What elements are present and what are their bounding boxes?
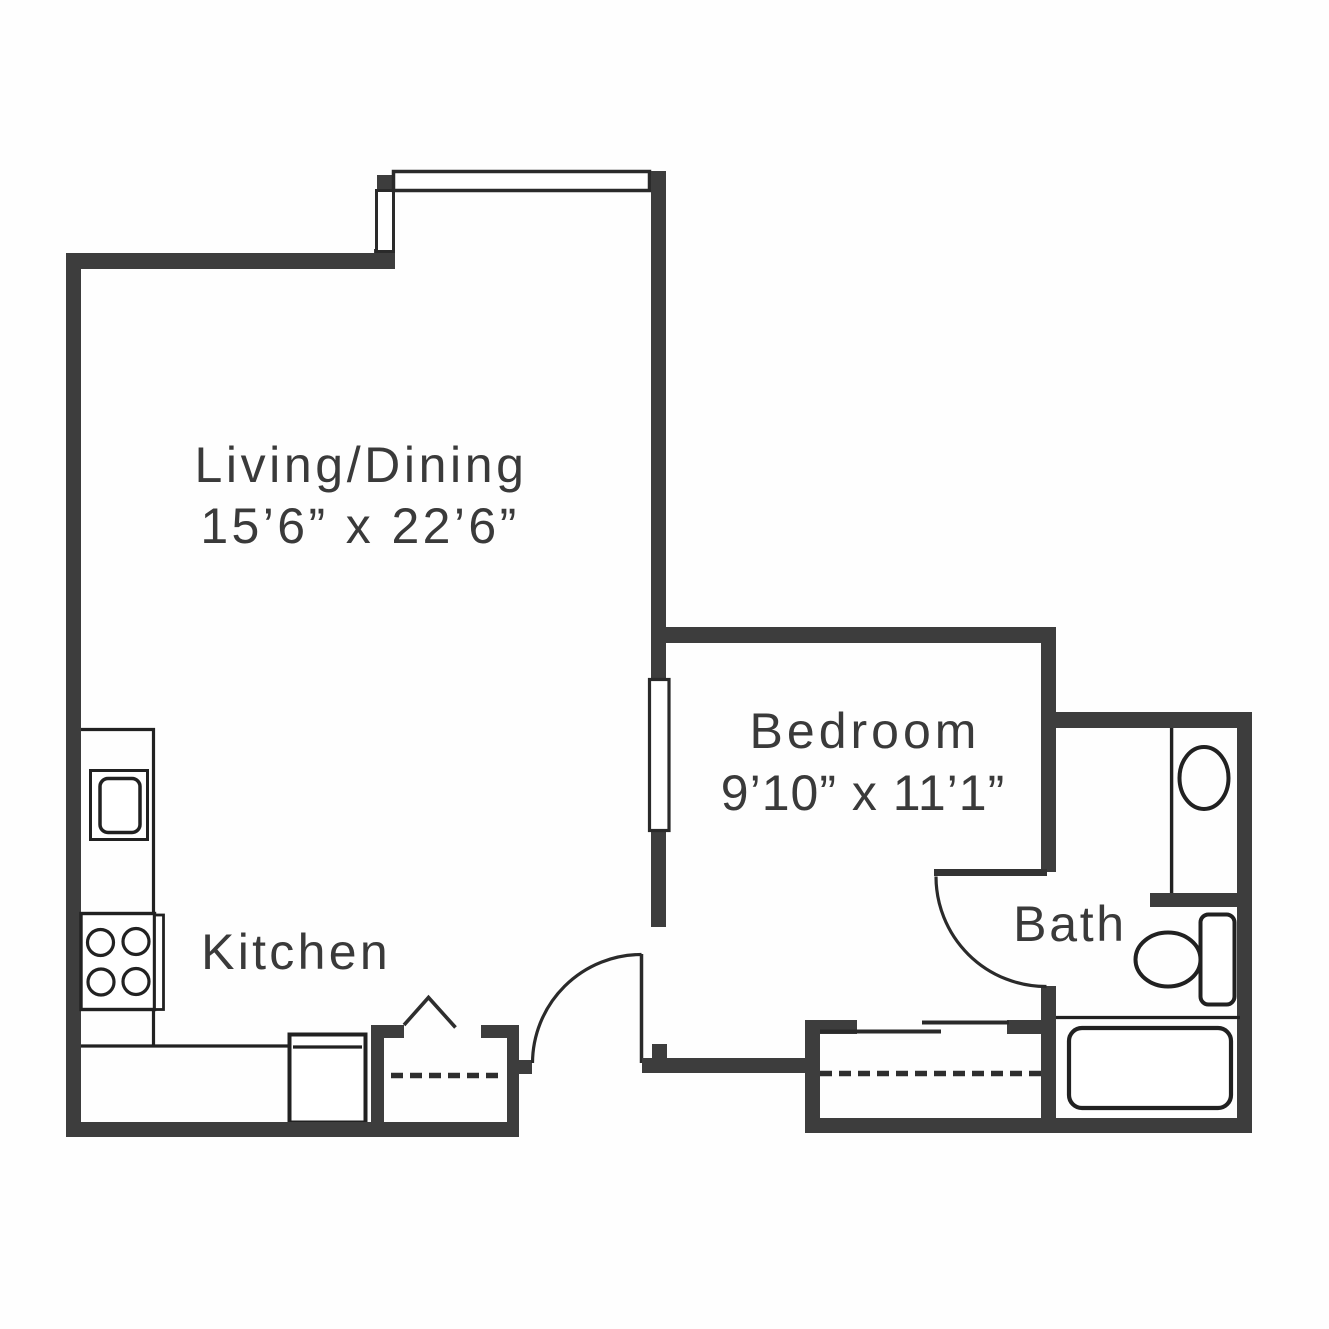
- svg-text:Bath: Bath: [1013, 896, 1127, 952]
- svg-text:Living/Dining: Living/Dining: [194, 437, 527, 493]
- svg-text:15’6” x 22’6”: 15’6” x 22’6”: [200, 498, 519, 554]
- svg-text:Bedroom: Bedroom: [750, 703, 981, 759]
- svg-text:Kitchen: Kitchen: [201, 924, 391, 980]
- svg-text:9’10” x 11’1”: 9’10” x 11’1”: [721, 765, 1005, 821]
